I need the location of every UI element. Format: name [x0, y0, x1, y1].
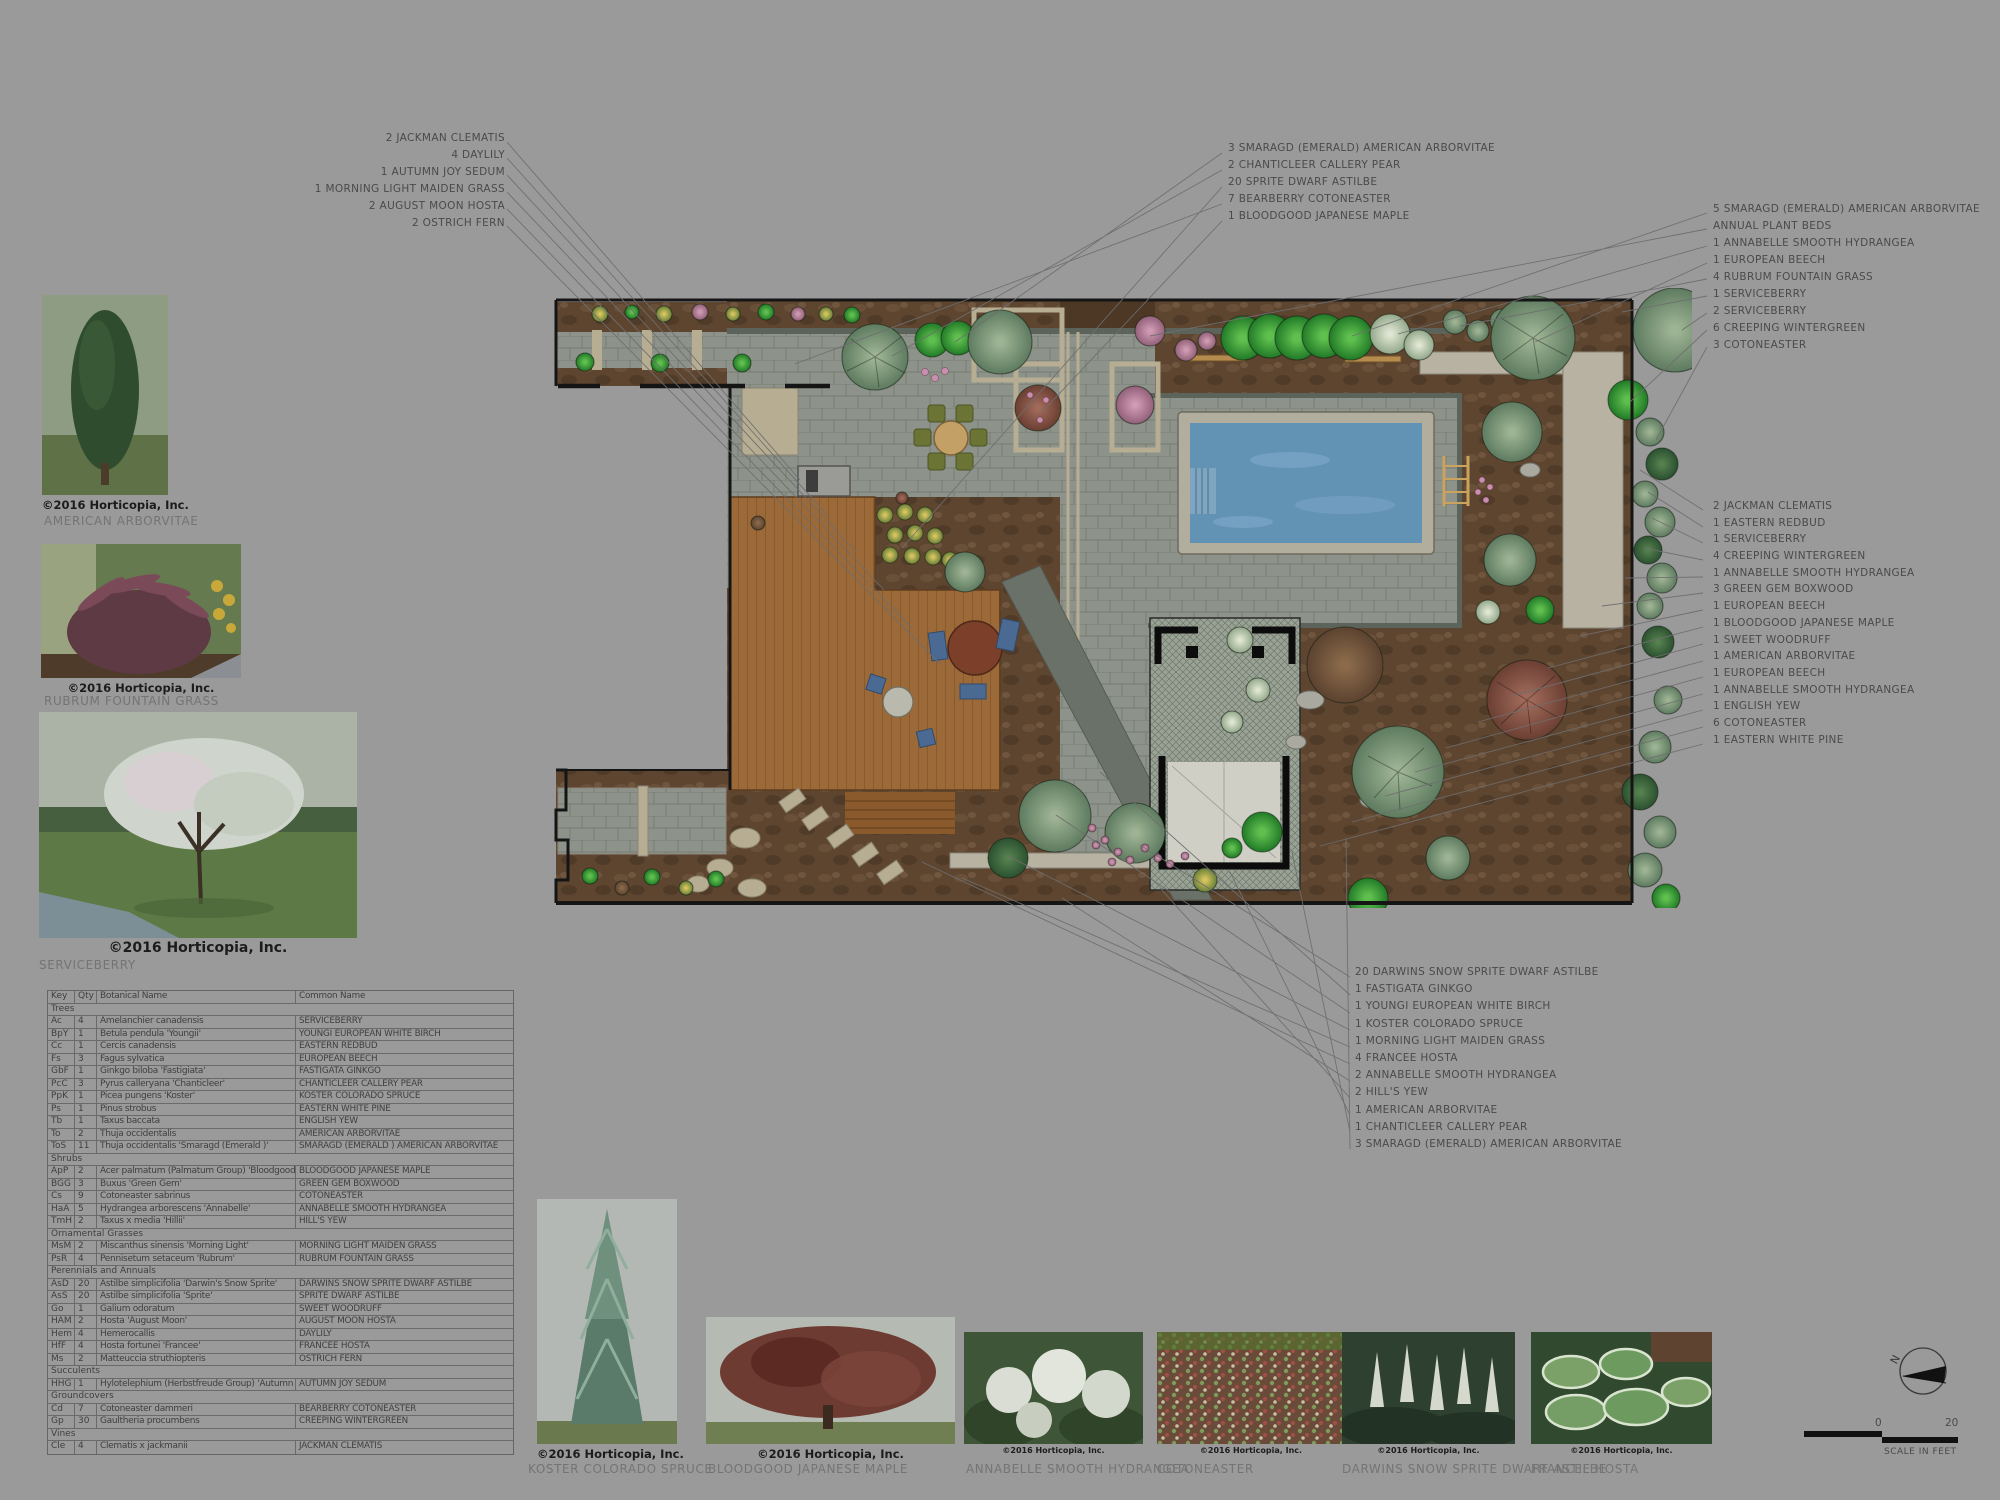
common-name-cell: SERVICEBERRY [296, 1016, 513, 1028]
table-row: HfF 4 Hosta fortunei 'Francee' FRANCEE H… [48, 1341, 513, 1354]
callout-label: 6 CREEPING WINTERGREEN [1713, 320, 1980, 337]
plant-qty-cell: 1 [75, 1041, 97, 1053]
table-row: Cd 7 Cotoneaster dammeri BEARBERRY COTON… [48, 1404, 513, 1417]
botanical-name-cell: Hydrangea arborescens 'Annabelle' [97, 1204, 296, 1216]
photo-cotoneaster [1157, 1332, 1345, 1444]
plant-qty-cell: 4 [75, 1254, 97, 1266]
plant-qty-cell: 11 [75, 1141, 97, 1153]
table-row: Ps 1 Pinus strobus EASTERN WHITE PINE [48, 1104, 513, 1117]
plant-qty-cell: 20 [75, 1279, 97, 1291]
common-name-cell: JACKMAN CLEMATIS [296, 1441, 513, 1454]
schedule-section-label: Succulents [48, 1366, 513, 1378]
botanical-name-cell: Hosta fortunei 'Francee' [97, 1341, 296, 1353]
botanical-name-cell: Pennisetum setaceum 'Rubrum' [97, 1254, 296, 1266]
common-name-cell: COTONEASTER [296, 1191, 513, 1203]
callout-label: 1 AMERICAN ARBORVITAE [1713, 648, 1915, 665]
botanical-name-cell: Hemerocallis [97, 1329, 296, 1341]
plant-key-cell: GbF [48, 1066, 75, 1078]
callout-group-top-center: 3 SMARAGD (EMERALD) AMERICAN ARBORVITAE2… [1228, 140, 1495, 225]
table-row: HHG 1 Hylotelephium (Herbstfreude Group)… [48, 1379, 513, 1392]
plant-key-cell: Cle [48, 1441, 75, 1454]
plant-key-cell: TmH [48, 1216, 75, 1228]
botanical-name-cell: Hylotelephium (Herbstfreude Group) 'Autu… [97, 1379, 296, 1391]
callout-label: 1 KOSTER COLORADO SPRUCE [1355, 1016, 1622, 1033]
schedule-header-row: Key Qty Botanical Name Common Name [48, 991, 513, 1004]
callout-label: 2 JACKMAN CLEMATIS [1713, 498, 1915, 515]
plant-key-cell: To [48, 1129, 75, 1141]
callout-label: 1 SWEET WOODRUFF [1713, 632, 1915, 649]
table-row: Hem 4 Hemerocallis DAYLILY [48, 1329, 513, 1342]
plant-key-cell: Ac [48, 1016, 75, 1028]
callout-label: 2 ANNABELLE SMOOTH HYDRANGEA [1355, 1067, 1622, 1084]
plant-key-cell: HaA [48, 1204, 75, 1216]
plant-qty-cell: 2 [75, 1316, 97, 1328]
common-name-cell: YOUNGI EUROPEAN WHITE BIRCH [296, 1029, 513, 1041]
photo-label: ANNABELLE SMOOTH HYDRANGEA [966, 1462, 1189, 1476]
callout-label: 20 SPRITE DWARF ASTILBE [1228, 174, 1495, 191]
botanical-name-cell: Astilbe simplicifolia 'Sprite' [97, 1291, 296, 1303]
plant-key-cell: Ps [48, 1104, 75, 1116]
plant-key-cell: Tb [48, 1116, 75, 1128]
botanical-name-cell: Clematis x jackmanii [97, 1441, 296, 1454]
plant-qty-cell: 1 [75, 1379, 97, 1391]
photo-label: AMERICAN ARBORVITAE [44, 514, 198, 528]
photo-credit: ©2016 Horticopia, Inc. [537, 1447, 677, 1461]
botanical-name-cell: Gaultheria procumbens [97, 1416, 296, 1428]
plant-qty-cell: 4 [75, 1329, 97, 1341]
photo-credit: ©2016 Horticopia, Inc. [1342, 1446, 1515, 1455]
photo-credit: ©2016 Horticopia, Inc. [41, 681, 241, 695]
callout-label: 1 CHANTICLEER CALLERY PEAR [1355, 1119, 1622, 1136]
common-name-cell: KOSTER COLORADO SPRUCE [296, 1091, 513, 1103]
common-name-cell: AMERICAN ARBORVITAE [296, 1129, 513, 1141]
common-name-cell: BLOODGOOD JAPANESE MAPLE [296, 1166, 513, 1178]
callout-label: 1 ANNABELLE SMOOTH HYDRANGEA [1713, 682, 1915, 699]
common-name-cell: FASTIGATA GINKGO [296, 1066, 513, 1078]
callout-label: ANNUAL PLANT BEDS [1713, 218, 1980, 235]
common-name-cell: HILL'S YEW [296, 1216, 513, 1228]
plant-qty-cell: 1 [75, 1066, 97, 1078]
landscape-plan-sheet: 2 JACKMAN CLEMATIS4 DAYLILY1 AUTUMN JOY … [0, 0, 2000, 1500]
scale-caption: SCALE IN FEET [1884, 1447, 1979, 1457]
botanical-name-cell: Taxus x media 'Hillii' [97, 1216, 296, 1228]
callout-label: 1 EUROPEAN BEECH [1713, 598, 1915, 615]
schedule-section-label: Vines [48, 1429, 513, 1441]
table-row: PcC 3 Pyrus calleryana 'Chanticleer' CHA… [48, 1079, 513, 1092]
table-row: PsR 4 Pennisetum setaceum 'Rubrum' RUBRU… [48, 1254, 513, 1267]
plant-schedule-table: Key Qty Botanical Name Common Name Trees… [47, 990, 514, 1455]
column-header: Botanical Name [97, 991, 296, 1003]
callout-label: 1 YOUNGI EUROPEAN WHITE BIRCH [1355, 998, 1622, 1015]
callout-label: 2 AUGUST MOON HOSTA [185, 198, 505, 215]
table-row: To 2 Thuja occidentalis AMERICAN ARBORVI… [48, 1129, 513, 1142]
plant-key-cell: PcC [48, 1079, 75, 1091]
callout-label: 7 BEARBERRY COTONEASTER [1228, 191, 1495, 208]
callout-group-right: 2 JACKMAN CLEMATIS1 EASTERN REDBUD1 SERV… [1713, 498, 1915, 748]
common-name-cell: ANNABELLE SMOOTH HYDRANGEA [296, 1204, 513, 1216]
table-row: Vines [48, 1429, 513, 1442]
table-row: Cc 1 Cercis canadensis EASTERN REDBUD [48, 1041, 513, 1054]
plant-qty-cell: 1 [75, 1304, 97, 1316]
table-row: AsS 20 Astilbe simplicifolia 'Sprite' SP… [48, 1291, 513, 1304]
plant-key-cell: Cs [48, 1191, 75, 1203]
callout-group-top-left: 2 JACKMAN CLEMATIS4 DAYLILY1 AUTUMN JOY … [185, 130, 505, 232]
callout-label: 5 SMARAGD (EMERALD) AMERICAN ARBORVITAE [1713, 201, 1980, 218]
plant-key-cell: HHG [48, 1379, 75, 1391]
schedule-section-label: Perennials and Annuals [48, 1266, 513, 1278]
common-name-cell: CREEPING WINTERGREEN [296, 1416, 513, 1428]
callout-label: 3 SMARAGD (EMERALD) AMERICAN ARBORVITAE [1355, 1136, 1622, 1153]
photo-annabelle-smooth-hydrangea [964, 1332, 1143, 1444]
callout-label: 1 FASTIGATA GINKGO [1355, 981, 1622, 998]
table-row: Ac 4 Amelanchier canadensis SERVICEBERRY [48, 1016, 513, 1029]
common-name-cell: FRANCEE HOSTA [296, 1341, 513, 1353]
plant-key-cell: Cd [48, 1404, 75, 1416]
botanical-name-cell: Pyrus calleryana 'Chanticleer' [97, 1079, 296, 1091]
schedule-rows: Trees Ac 4 Amelanchier canadensis SERVIC… [48, 1004, 513, 1454]
botanical-name-cell: Thuja occidentalis [97, 1129, 296, 1141]
callout-label: 1 ANNABELLE SMOOTH HYDRANGEA [1713, 565, 1915, 582]
photo-label: SERVICEBERRY [39, 958, 136, 972]
common-name-cell: RUBRUM FOUNTAIN GRASS [296, 1254, 513, 1266]
plant-qty-cell: 1 [75, 1116, 97, 1128]
plant-qty-cell: 7 [75, 1404, 97, 1416]
table-row: Succulents [48, 1366, 513, 1379]
photo-credit: ©2016 Horticopia, Inc. [1531, 1446, 1712, 1455]
plant-qty-cell: 1 [75, 1091, 97, 1103]
plant-key-cell: ToS [48, 1141, 75, 1153]
plant-key-cell: BpY [48, 1029, 75, 1041]
schedule-section-label: Ornamental Grasses [48, 1229, 513, 1241]
plant-qty-cell: 4 [75, 1016, 97, 1028]
column-header: Key [48, 991, 75, 1003]
botanical-name-cell: Cotoneaster dammeri [97, 1404, 296, 1416]
callout-label: 2 JACKMAN CLEMATIS [185, 130, 505, 147]
table-row: TmH 2 Taxus x media 'Hillii' HILL'S YEW [48, 1216, 513, 1229]
schedule-section-label: Shrubs [48, 1154, 513, 1166]
table-row: ToS 11 Thuja occidentalis 'Smaragd (Emer… [48, 1141, 513, 1154]
common-name-cell: EASTERN REDBUD [296, 1041, 513, 1053]
photo-darwins-snow-sprite-dwarf-astilbe [1342, 1332, 1515, 1444]
photo-label: BLOODGOOD JAPANESE MAPLE [708, 1462, 908, 1476]
callout-label: 2 SERVICEBERRY [1713, 303, 1980, 320]
plant-key-cell: Gp [48, 1416, 75, 1428]
photo-credit: ©2016 Horticopia, Inc. [964, 1446, 1143, 1455]
botanical-name-cell: Cotoneaster sabrinus [97, 1191, 296, 1203]
callout-label: 4 RUBRUM FOUNTAIN GRASS [1713, 269, 1980, 286]
callout-label: 6 COTONEASTER [1713, 715, 1915, 732]
table-row: BGG 3 Buxus 'Green Gem' GREEN GEM BOXWOO… [48, 1179, 513, 1192]
plant-qty-cell: 4 [75, 1341, 97, 1353]
table-row: MsM 2 Miscanthus sinensis 'Morning Light… [48, 1241, 513, 1254]
callout-label: 1 ENGLISH YEW [1713, 698, 1915, 715]
callout-label: 3 COTONEASTER [1713, 337, 1980, 354]
callout-label: 1 EUROPEAN BEECH [1713, 665, 1915, 682]
photo-koster-colorado-spruce [537, 1199, 677, 1444]
table-row: ApP 2 Acer palmatum (Palmatum Group) 'Bl… [48, 1166, 513, 1179]
callout-label: 3 GREEN GEM BOXWOOD [1713, 581, 1915, 598]
botanical-name-cell: Betula pendula 'Youngii' [97, 1029, 296, 1041]
plant-qty-cell: 3 [75, 1054, 97, 1066]
table-row: HaA 5 Hydrangea arborescens 'Annabelle' … [48, 1204, 513, 1217]
plant-key-cell: AsD [48, 1279, 75, 1291]
botanical-name-cell: Ginkgo biloba 'Fastigiata' [97, 1066, 296, 1078]
table-row: Trees [48, 1004, 513, 1017]
plant-key-cell: PsR [48, 1254, 75, 1266]
table-row: Fs 3 Fagus sylvatica EUROPEAN BEECH [48, 1054, 513, 1067]
plant-key-cell: MsM [48, 1241, 75, 1253]
table-row: Cs 9 Cotoneaster sabrinus COTONEASTER [48, 1191, 513, 1204]
table-row: BpY 1 Betula pendula 'Youngii' YOUNGI EU… [48, 1029, 513, 1042]
callout-label: 1 AUTUMN JOY SEDUM [185, 164, 505, 181]
botanical-name-cell: Miscanthus sinensis 'Morning Light' [97, 1241, 296, 1253]
callout-label: 1 BLOODGOOD JAPANESE MAPLE [1713, 615, 1915, 632]
photo-label: RUBRUM FOUNTAIN GRASS [44, 694, 219, 708]
common-name-cell: AUGUST MOON HOSTA [296, 1316, 513, 1328]
callout-label: 2 OSTRICH FERN [185, 215, 505, 232]
table-row: Cle 4 Clematis x jackmanii JACKMAN CLEMA… [48, 1441, 513, 1454]
callout-label: 4 CREEPING WINTERGREEN [1713, 548, 1915, 565]
plant-qty-cell: 3 [75, 1179, 97, 1191]
botanical-name-cell: Galium odoratum [97, 1304, 296, 1316]
scale-tick: 20 [1945, 1417, 1958, 1429]
table-row: Tb 1 Taxus baccata ENGLISH YEW [48, 1116, 513, 1129]
botanical-name-cell: Buxus 'Green Gem' [97, 1179, 296, 1191]
plant-qty-cell: 4 [75, 1441, 97, 1454]
photo-credit: ©2016 Horticopia, Inc. [1157, 1446, 1345, 1455]
callout-label: 20 DARWINS SNOW SPRITE DWARF ASTILBE [1355, 964, 1622, 981]
plant-key-cell: PpK [48, 1091, 75, 1103]
callout-label: 1 ANNABELLE SMOOTH HYDRANGEA [1713, 235, 1980, 252]
callout-label: 1 SERVICEBERRY [1713, 286, 1980, 303]
column-header: Common Name [296, 991, 513, 1003]
callout-label: 1 EASTERN REDBUD [1713, 515, 1915, 532]
botanical-name-cell: Fagus sylvatica [97, 1054, 296, 1066]
photo-bloodgood-japanese-maple [706, 1317, 955, 1444]
photo-serviceberry [39, 712, 357, 938]
common-name-cell: ENGLISH YEW [296, 1116, 513, 1128]
plant-qty-cell: 3 [75, 1079, 97, 1091]
schedule-section-label: Groundcovers [48, 1391, 513, 1403]
common-name-cell: SPRITE DWARF ASTILBE [296, 1291, 513, 1303]
botanical-name-cell: Thuja occidentalis 'Smaragd (Emerald )' [97, 1141, 296, 1153]
botanical-name-cell: Matteuccia struthiopteris [97, 1354, 296, 1366]
table-row: Ms 2 Matteuccia struthiopteris OSTRICH F… [48, 1354, 513, 1367]
north-arrow-icon: N [1880, 1330, 1975, 1420]
photo-credit: ©2016 Horticopia, Inc. [39, 940, 357, 956]
common-name-cell: DARWINS SNOW SPRITE DWARF ASTILBE [296, 1279, 513, 1291]
botanical-name-cell: Astilbe simplicifolia 'Darwin's Snow Spr… [97, 1279, 296, 1291]
common-name-cell: SWEET WOODRUFF [296, 1304, 513, 1316]
common-name-cell: MORNING LIGHT MAIDEN GRASS [296, 1241, 513, 1253]
photo-credit: ©2016 Horticopia, Inc. [706, 1447, 955, 1461]
callout-label: 4 FRANCEE HOSTA [1355, 1050, 1622, 1067]
botanical-name-cell: Acer palmatum (Palmatum Group) 'Bloodgoo… [97, 1166, 296, 1178]
table-row: AsD 20 Astilbe simplicifolia 'Darwin's S… [48, 1279, 513, 1292]
plant-key-cell: Hem [48, 1329, 75, 1341]
plant-qty-cell: 2 [75, 1166, 97, 1178]
table-row: PpK 1 Picea pungens 'Koster' KOSTER COLO… [48, 1091, 513, 1104]
callout-label: 2 HILL'S YEW [1355, 1084, 1622, 1101]
plant-qty-cell: 2 [75, 1129, 97, 1141]
callout-group-bottom: 20 DARWINS SNOW SPRITE DWARF ASTILBE1 FA… [1355, 964, 1622, 1153]
botanical-name-cell: Picea pungens 'Koster' [97, 1091, 296, 1103]
common-name-cell: EASTERN WHITE PINE [296, 1104, 513, 1116]
callout-label: 3 SMARAGD (EMERALD) AMERICAN ARBORVITAE [1228, 140, 1495, 157]
callout-label: 1 SERVICEBERRY [1713, 531, 1915, 548]
plant-qty-cell: 9 [75, 1191, 97, 1203]
column-header: Qty [75, 991, 97, 1003]
photo-credit: ©2016 Horticopia, Inc. [42, 498, 168, 512]
table-row: Ornamental Grasses [48, 1229, 513, 1242]
common-name-cell: CHANTICLEER CALLERY PEAR [296, 1079, 513, 1091]
photo-label: FRANCEE HOSTA [1531, 1462, 1639, 1476]
photo-american-arborvitae [42, 295, 168, 495]
photo-francee-hosta [1531, 1332, 1712, 1444]
table-row: Perennials and Annuals [48, 1266, 513, 1279]
callout-label: 1 MORNING LIGHT MAIDEN GRASS [1355, 1033, 1622, 1050]
plant-key-cell: ApP [48, 1166, 75, 1178]
table-row: Gp 30 Gaultheria procumbens CREEPING WIN… [48, 1416, 513, 1429]
plant-key-cell: Cc [48, 1041, 75, 1053]
plant-key-cell: HfF [48, 1341, 75, 1353]
plant-key-cell: Fs [48, 1054, 75, 1066]
common-name-cell: AUTUMN JOY SEDUM [296, 1379, 513, 1391]
common-name-cell: EUROPEAN BEECH [296, 1054, 513, 1066]
plant-key-cell: AsS [48, 1291, 75, 1303]
botanical-name-cell: Amelanchier canadensis [97, 1016, 296, 1028]
callout-label: 4 DAYLILY [185, 147, 505, 164]
botanical-name-cell: Cercis canadensis [97, 1041, 296, 1053]
table-row: HAM 2 Hosta 'August Moon' AUGUST MOON HO… [48, 1316, 513, 1329]
plant-key-cell: BGG [48, 1179, 75, 1191]
callout-label: 1 MORNING LIGHT MAIDEN GRASS [185, 181, 505, 198]
botanical-name-cell: Hosta 'August Moon' [97, 1316, 296, 1328]
plant-qty-cell: 1 [75, 1104, 97, 1116]
table-row: GbF 1 Ginkgo biloba 'Fastigiata' FASTIGA… [48, 1066, 513, 1079]
photo-label: KOSTER COLORADO SPRUCE [528, 1462, 713, 1476]
photo-rubrum-fountain-grass [41, 544, 241, 678]
botanical-name-cell: Taxus baccata [97, 1116, 296, 1128]
plant-qty-cell: 20 [75, 1291, 97, 1303]
plant-qty-cell: 2 [75, 1354, 97, 1366]
table-row: Go 1 Galium odoratum SWEET WOODRUFF [48, 1304, 513, 1317]
callout-group-top-right: 5 SMARAGD (EMERALD) AMERICAN ARBORVITAEA… [1713, 201, 1980, 354]
callout-label: 1 BLOODGOOD JAPANESE MAPLE [1228, 208, 1495, 225]
plant-key-cell: HAM [48, 1316, 75, 1328]
schedule-section-label: Trees [48, 1004, 513, 1016]
callout-label: 1 EUROPEAN BEECH [1713, 252, 1980, 269]
plant-key-cell: Ms [48, 1354, 75, 1366]
common-name-cell: DAYLILY [296, 1329, 513, 1341]
botanical-name-cell: Pinus strobus [97, 1104, 296, 1116]
callout-label: 2 CHANTICLEER CALLERY PEAR [1228, 157, 1495, 174]
photo-label: COTONEASTER [1157, 1462, 1254, 1476]
plant-qty-cell: 1 [75, 1029, 97, 1041]
common-name-cell: BEARBERRY COTONEASTER [296, 1404, 513, 1416]
scale-tick: 0 [1875, 1417, 1882, 1429]
callout-label: 1 AMERICAN ARBORVITAE [1355, 1102, 1622, 1119]
plant-qty-cell: 2 [75, 1241, 97, 1253]
table-row: Groundcovers [48, 1391, 513, 1404]
common-name-cell: GREEN GEM BOXWOOD [296, 1179, 513, 1191]
plant-qty-cell: 5 [75, 1204, 97, 1216]
table-row: Shrubs [48, 1154, 513, 1167]
plant-qty-cell: 2 [75, 1216, 97, 1228]
common-name-cell: SMARAGD (EMERALD ) AMERICAN ARBORVITAE [296, 1141, 513, 1153]
plant-key-cell: Go [48, 1304, 75, 1316]
plant-qty-cell: 30 [75, 1416, 97, 1428]
callout-label: 1 EASTERN WHITE PINE [1713, 732, 1915, 749]
common-name-cell: OSTRICH FERN [296, 1354, 513, 1366]
